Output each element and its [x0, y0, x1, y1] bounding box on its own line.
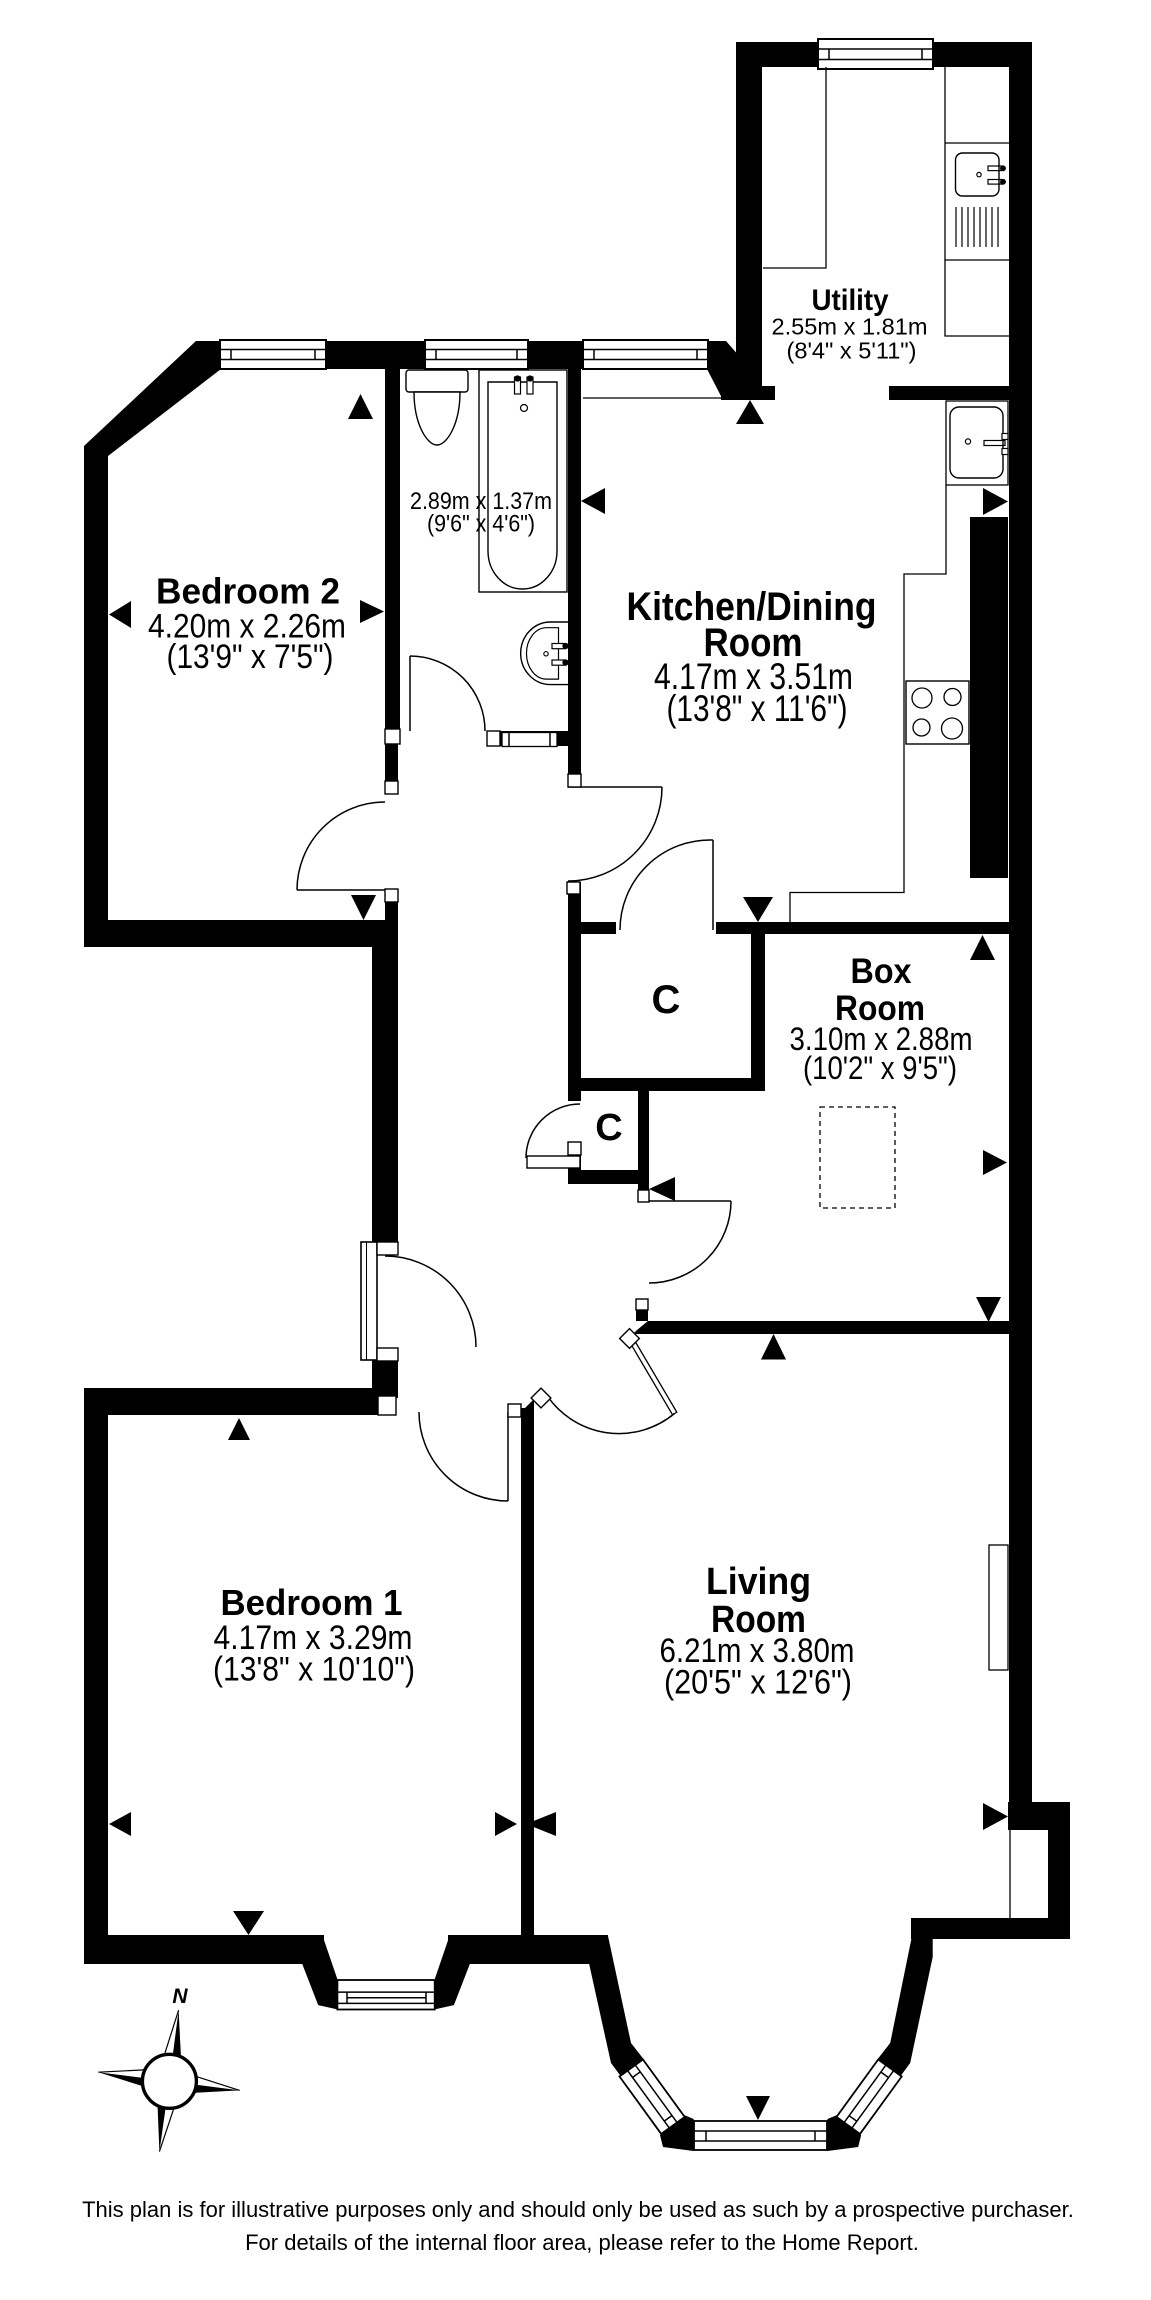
svg-text:(9'6" x 4'6"): (9'6" x 4'6") — [427, 511, 535, 538]
svg-text:C: C — [652, 978, 681, 1022]
svg-text:C: C — [595, 1107, 622, 1149]
svg-text:For details of the internal fl: For details of the internal floor area, … — [245, 2230, 919, 2255]
svg-text:(13'8" x 11'6"): (13'8" x 11'6") — [667, 688, 848, 729]
svg-text:Utility: Utility — [812, 284, 889, 317]
svg-text:Living: Living — [706, 1561, 811, 1603]
svg-text:(13'9" x 7'5"): (13'9" x 7'5") — [167, 638, 334, 676]
svg-text:(20'5" x 12'6"): (20'5" x 12'6") — [664, 1664, 852, 1702]
svg-text:2.55m x 1.81m: 2.55m x 1.81m — [772, 314, 928, 340]
svg-text:(8'4" x 5'11"): (8'4" x 5'11") — [787, 338, 917, 364]
svg-text:(10'2" x 9'5"): (10'2" x 9'5") — [803, 1050, 957, 1086]
svg-text:N: N — [172, 1985, 188, 2008]
svg-text:Bedroom 2: Bedroom 2 — [156, 571, 340, 612]
svg-text:Bedroom 1: Bedroom 1 — [221, 1582, 403, 1623]
svg-text:This plan is for illustrative: This plan is for illustrative purposes o… — [82, 2197, 1074, 2222]
svg-text:(13'8" x 10'10"): (13'8" x 10'10") — [213, 1651, 415, 1689]
svg-text:Box: Box — [851, 952, 912, 991]
